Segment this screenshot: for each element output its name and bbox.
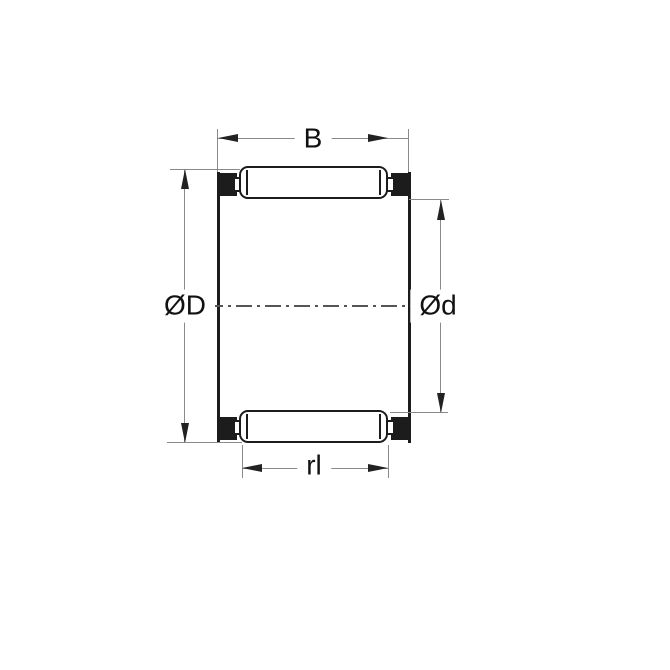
dim-inner-diameter-label: Ød (410, 290, 465, 323)
dim-od-arrow-up-icon (181, 169, 189, 189)
dim-id-arrow-down-icon (437, 393, 445, 413)
cage-block-bottom-right (391, 417, 410, 440)
dim-b-arrow-right-icon (368, 134, 388, 142)
center-axis-line (207, 305, 440, 307)
dim-rl-arrow-right-icon (368, 464, 388, 472)
dim-b-label: B (295, 123, 332, 156)
dim-rl-extension-right (388, 445, 389, 478)
bearing-diagram: B ØD Ød rl (0, 0, 670, 670)
dim-od-extension-bottom (167, 442, 242, 443)
dim-rl-arrow-left-icon (242, 464, 262, 472)
dim-outer-diameter-label: ØD (155, 290, 215, 323)
dim-b-arrow-left-icon (218, 134, 238, 142)
roller-end-line (246, 414, 248, 439)
needle-roller-bottom (239, 410, 388, 443)
dim-roller-length-label: rl (297, 450, 331, 483)
roller-end-line (246, 170, 248, 195)
roller-end-line (379, 414, 381, 439)
dim-b-extension-right (408, 129, 409, 172)
dim-id-arrow-up-icon (437, 200, 445, 220)
dim-od-arrow-down-icon (181, 423, 189, 443)
bearing-left-edge (217, 172, 220, 443)
needle-roller-top (239, 166, 388, 199)
cage-block-top-right (391, 173, 410, 196)
dim-rl-extension-left (242, 445, 243, 478)
roller-end-line (379, 170, 381, 195)
